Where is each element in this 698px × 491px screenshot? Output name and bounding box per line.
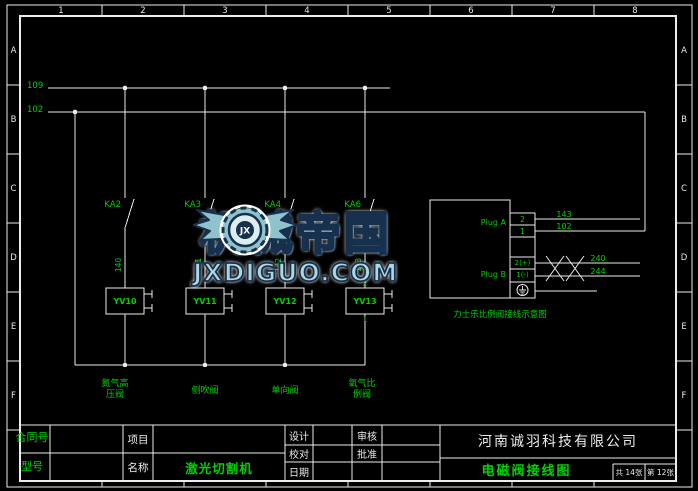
left-zone-a: A: [7, 16, 20, 85]
plug-wire-143: 143: [551, 210, 577, 219]
design-label: 设计: [286, 429, 312, 441]
valve-pin-bottom: 1: [361, 315, 369, 324]
sheet-total: 共 14张: [613, 466, 645, 479]
right-zone-f: F: [677, 361, 691, 430]
company-name: 河南诚羽科技有限公司: [444, 433, 672, 449]
right-zone-e: E: [677, 292, 691, 361]
plug-b-pin-2plus: 2(+): [511, 258, 534, 268]
proportional-valve-note: 力士乐比例阀接线示意图: [444, 308, 556, 319]
bus-label-109: 109: [27, 82, 43, 91]
plug-b-pin-1minus: 1(-): [511, 270, 534, 280]
valve-label-yv10: YV10: [106, 288, 144, 314]
jx-logo-initials: JX: [239, 227, 250, 237]
proof-label: 校对: [286, 447, 312, 459]
top-zone-7: 7: [512, 5, 594, 16]
model-no-label: 型号: [12, 457, 52, 475]
contract-no-label: 合同号: [12, 428, 52, 446]
plug-wire-244: 244: [585, 267, 611, 276]
drawing-title: 电磁阀接线图: [443, 461, 610, 477]
left-zone-b: B: [7, 85, 20, 154]
machine-name: 激光切割机: [155, 459, 283, 475]
top-zone-1: 1: [20, 5, 102, 16]
top-zone-5: 5: [348, 5, 430, 16]
valve-caption-3a: 单向阀: [257, 384, 313, 395]
top-zone-2: 2: [102, 5, 184, 16]
valve-caption-4b: 例阀: [334, 388, 390, 399]
right-zone-a: A: [677, 16, 691, 85]
watermark: JX 机械帝国 JXDIGUO.COM: [193, 192, 505, 292]
audit-label: 审核: [353, 429, 381, 441]
left-zone-f: F: [7, 361, 20, 430]
bus-label-102: 102: [27, 106, 43, 115]
left-zone-d: D: [7, 223, 20, 292]
wire-number-140: 140: [113, 254, 123, 276]
left-zone-e: E: [7, 292, 20, 361]
contact-label-ka2: KA2: [95, 201, 121, 210]
top-zone-8: 8: [594, 5, 676, 16]
plug-a-pin-2: 2: [511, 214, 534, 224]
right-zone-c: C: [677, 154, 691, 223]
top-zone-3: 3: [184, 5, 266, 16]
approve-label: 批准: [353, 447, 381, 459]
jx-winged-gear-icon: JX: [193, 192, 297, 268]
ground-icon: [517, 285, 528, 296]
date-label: 日期: [286, 465, 312, 477]
valve-caption-1b: 压阀: [87, 388, 143, 399]
right-zone-d: D: [677, 223, 691, 292]
plug-wire-102: 102: [551, 222, 577, 231]
plug-wire-240: 240: [585, 254, 611, 263]
sheet-index: 第 12张: [645, 466, 676, 479]
top-zone-4: 4: [266, 5, 348, 16]
project-label: 项目: [123, 432, 153, 446]
plug-a-pin-1: 1: [511, 226, 534, 236]
left-zone-c: C: [7, 154, 20, 223]
cad-drawing-canvas: 1 2 3 4 5 6 7 8 A B C D E F A B C D E F …: [0, 0, 698, 491]
valve-caption-2a: 侧吹阀: [177, 384, 233, 395]
name-label: 名称: [123, 460, 153, 474]
top-zone-6: 6: [430, 5, 512, 16]
right-zone-b: B: [677, 85, 691, 154]
